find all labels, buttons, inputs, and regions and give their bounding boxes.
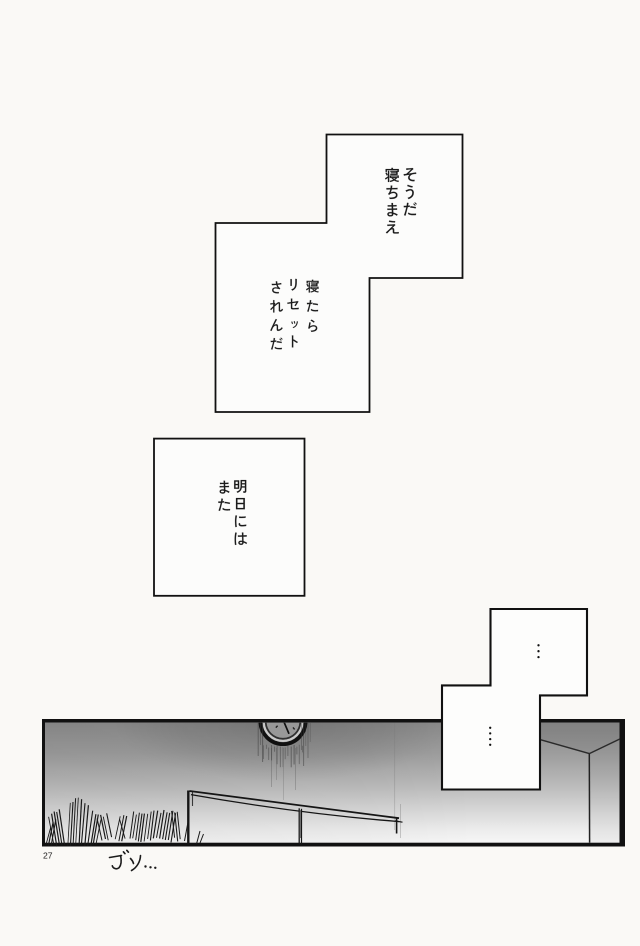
svg-text:27: 27 bbox=[43, 851, 53, 861]
